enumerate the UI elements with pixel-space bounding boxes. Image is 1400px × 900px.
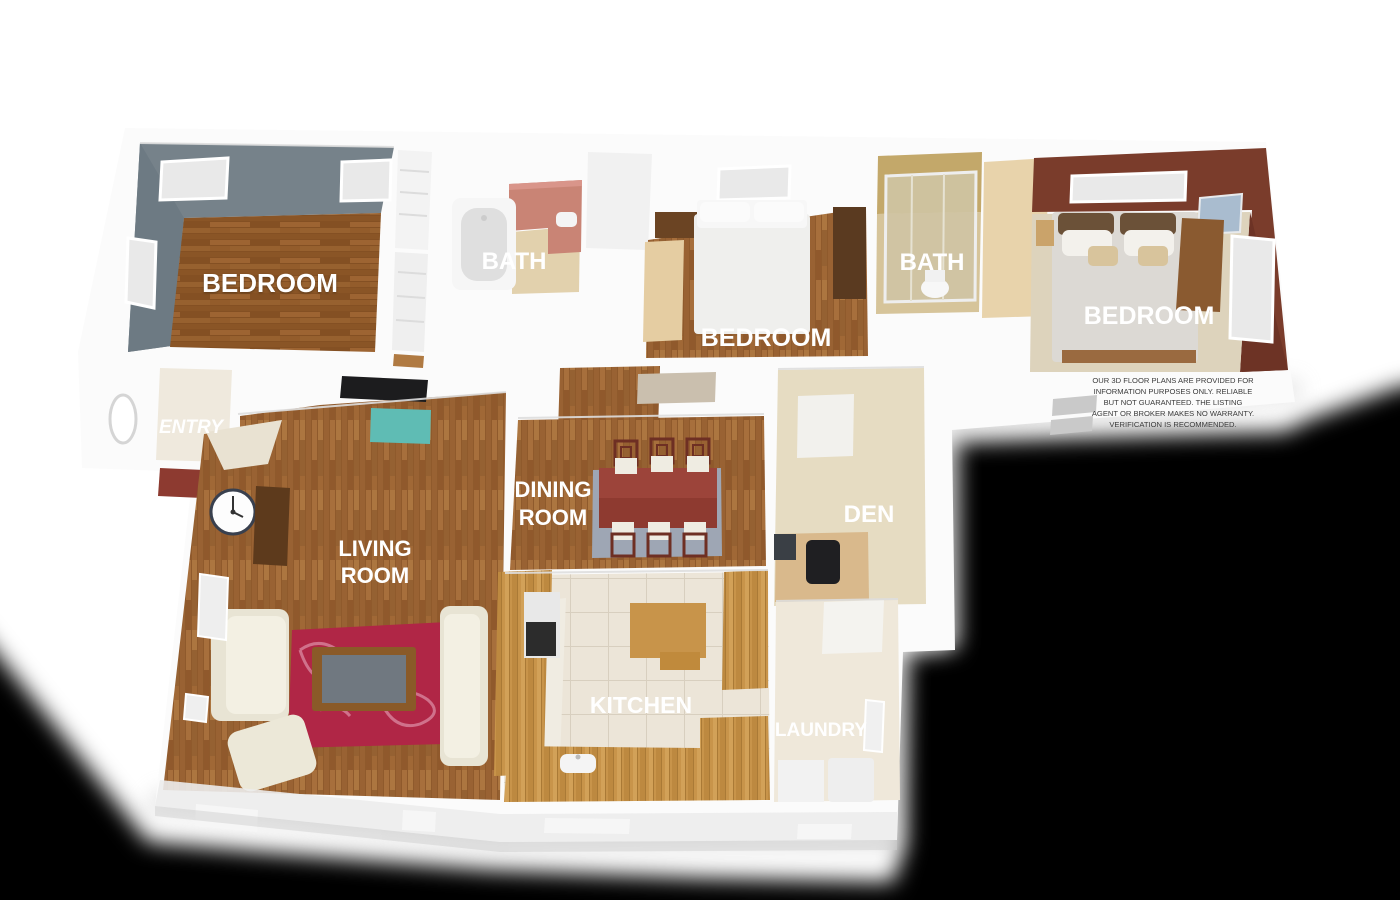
svg-text:DEN: DEN	[844, 501, 895, 528]
svg-text:OUR 3D FLOOR PLANS ARE PROVIDE: OUR 3D FLOOR PLANS ARE PROVIDED FOR	[1092, 376, 1254, 385]
svg-text:INFORMATION PURPOSES ONLY. REL: INFORMATION PURPOSES ONLY. RELIABLE	[1094, 387, 1253, 396]
svg-text:BATH: BATH	[482, 248, 547, 275]
svg-text:KITCHEN: KITCHEN	[590, 692, 692, 718]
svg-text:ENTRY: ENTRY	[159, 417, 225, 438]
svg-text:ROOM: ROOM	[519, 505, 587, 530]
svg-text:AGENT OR BROKER MAKES NO WARRA: AGENT OR BROKER MAKES NO WARRANTY.	[1092, 409, 1254, 418]
svg-text:VERIFICATION IS RECOMMENDED.: VERIFICATION IS RECOMMENDED.	[1109, 420, 1236, 429]
svg-text:BEDROOM: BEDROOM	[202, 268, 338, 298]
svg-text:BATH: BATH	[900, 249, 965, 276]
svg-text:LAUNDRY: LAUNDRY	[775, 720, 868, 741]
svg-text:BEDROOM: BEDROOM	[701, 324, 832, 352]
svg-text:ROOM: ROOM	[341, 563, 409, 588]
svg-text:BUT NOT GUARANTEED. THE LISTIN: BUT NOT GUARANTEED. THE LISTING	[1104, 398, 1243, 407]
svg-text:DINING: DINING	[515, 477, 592, 502]
svg-text:BEDROOM: BEDROOM	[1084, 302, 1215, 330]
svg-text:LIVING: LIVING	[338, 536, 411, 561]
